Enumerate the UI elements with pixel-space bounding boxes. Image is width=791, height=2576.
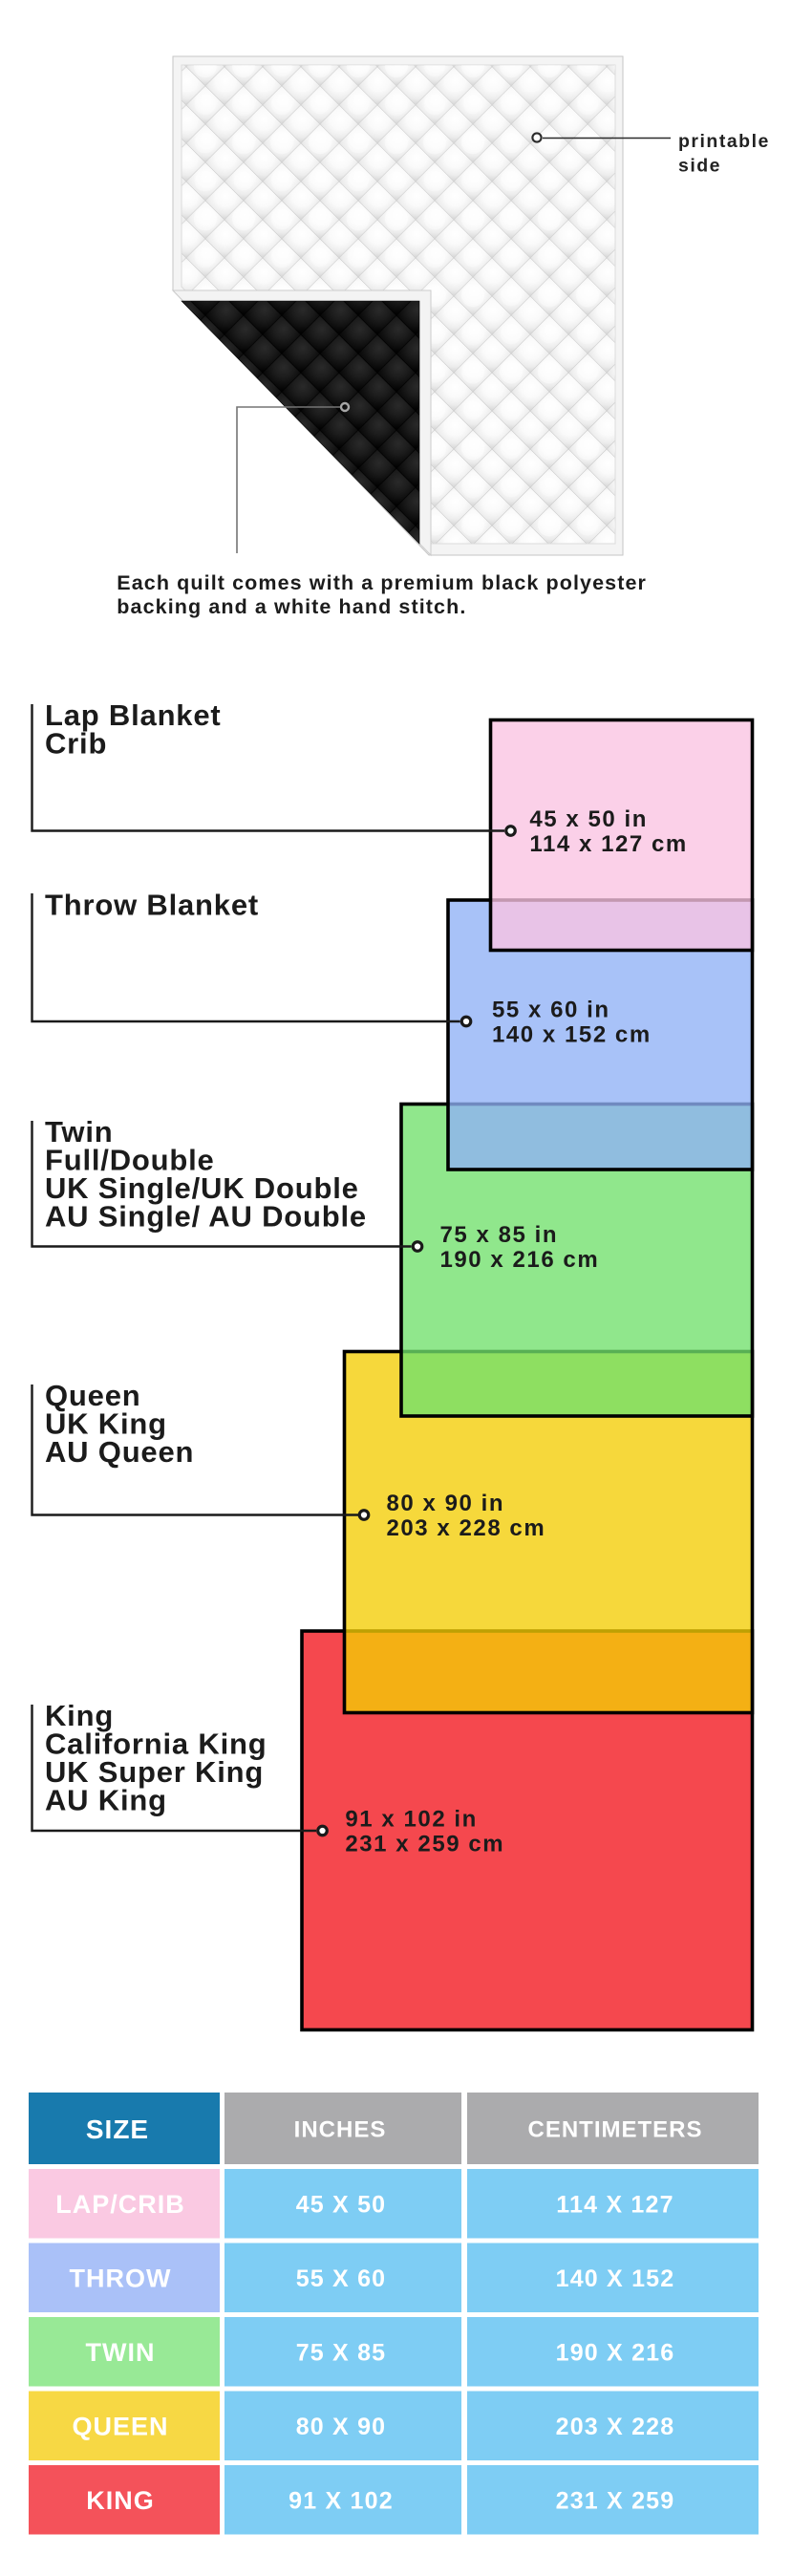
svg-text:SIZE: SIZE xyxy=(86,2114,149,2144)
svg-text:INCHES: INCHES xyxy=(294,2117,387,2143)
svg-text:140 X 152: 140 X 152 xyxy=(556,2265,675,2292)
svg-text:190 X 216: 190 X 216 xyxy=(556,2339,675,2366)
svg-text:45 X 50: 45 X 50 xyxy=(296,2191,387,2218)
svg-text:QUEEN: QUEEN xyxy=(72,2413,168,2441)
svg-text:backing and a white hand stitc: backing and a white hand stitch. xyxy=(117,595,466,618)
svg-text:AU Queen: AU Queen xyxy=(45,1435,194,1469)
svg-text:Crib: Crib xyxy=(45,727,107,761)
svg-text:LAP/CRIB: LAP/CRIB xyxy=(55,2190,185,2219)
svg-text:203 x 228 cm: 203 x 228 cm xyxy=(387,1515,546,1541)
svg-text:AU Single/ AU Double: AU Single/ AU Double xyxy=(45,1200,367,1234)
svg-text:231 x 259 cm: 231 x 259 cm xyxy=(345,1831,504,1857)
svg-text:Throw Blanket: Throw Blanket xyxy=(45,889,259,922)
svg-text:Each quilt comes with a premiu: Each quilt comes with a premium black po… xyxy=(117,571,647,594)
svg-text:CENTIMETERS: CENTIMETERS xyxy=(527,2117,702,2143)
svg-text:80 x 90 in: 80 x 90 in xyxy=(387,1491,505,1516)
svg-text:91 x 102 in: 91 x 102 in xyxy=(345,1807,477,1833)
svg-text:114 x 127 cm: 114 x 127 cm xyxy=(529,831,687,857)
svg-text:printable: printable xyxy=(678,131,770,152)
svg-text:side: side xyxy=(678,156,721,177)
svg-text:75 x 85 in: 75 x 85 in xyxy=(440,1222,559,1248)
svg-text:KING: KING xyxy=(86,2486,155,2515)
svg-text:114 X 127: 114 X 127 xyxy=(556,2191,673,2218)
svg-text:140 x 152 cm: 140 x 152 cm xyxy=(492,1021,652,1047)
svg-text:55 X 60: 55 X 60 xyxy=(296,2265,387,2292)
svg-text:AU King: AU King xyxy=(45,1784,167,1817)
svg-text:TWIN: TWIN xyxy=(86,2338,156,2367)
svg-text:75 X 85: 75 X 85 xyxy=(296,2339,387,2366)
svg-text:203 X 228: 203 X 228 xyxy=(556,2414,675,2440)
svg-text:231 X 259: 231 X 259 xyxy=(556,2487,675,2514)
svg-text:190 x 216 cm: 190 x 216 cm xyxy=(440,1247,600,1273)
svg-text:THROW: THROW xyxy=(70,2265,172,2293)
svg-text:45 x 50 in: 45 x 50 in xyxy=(529,806,648,832)
svg-text:91 X 102: 91 X 102 xyxy=(289,2487,394,2514)
svg-text:80 X 90: 80 X 90 xyxy=(296,2414,387,2440)
svg-text:55 x 60 in: 55 x 60 in xyxy=(492,998,610,1023)
